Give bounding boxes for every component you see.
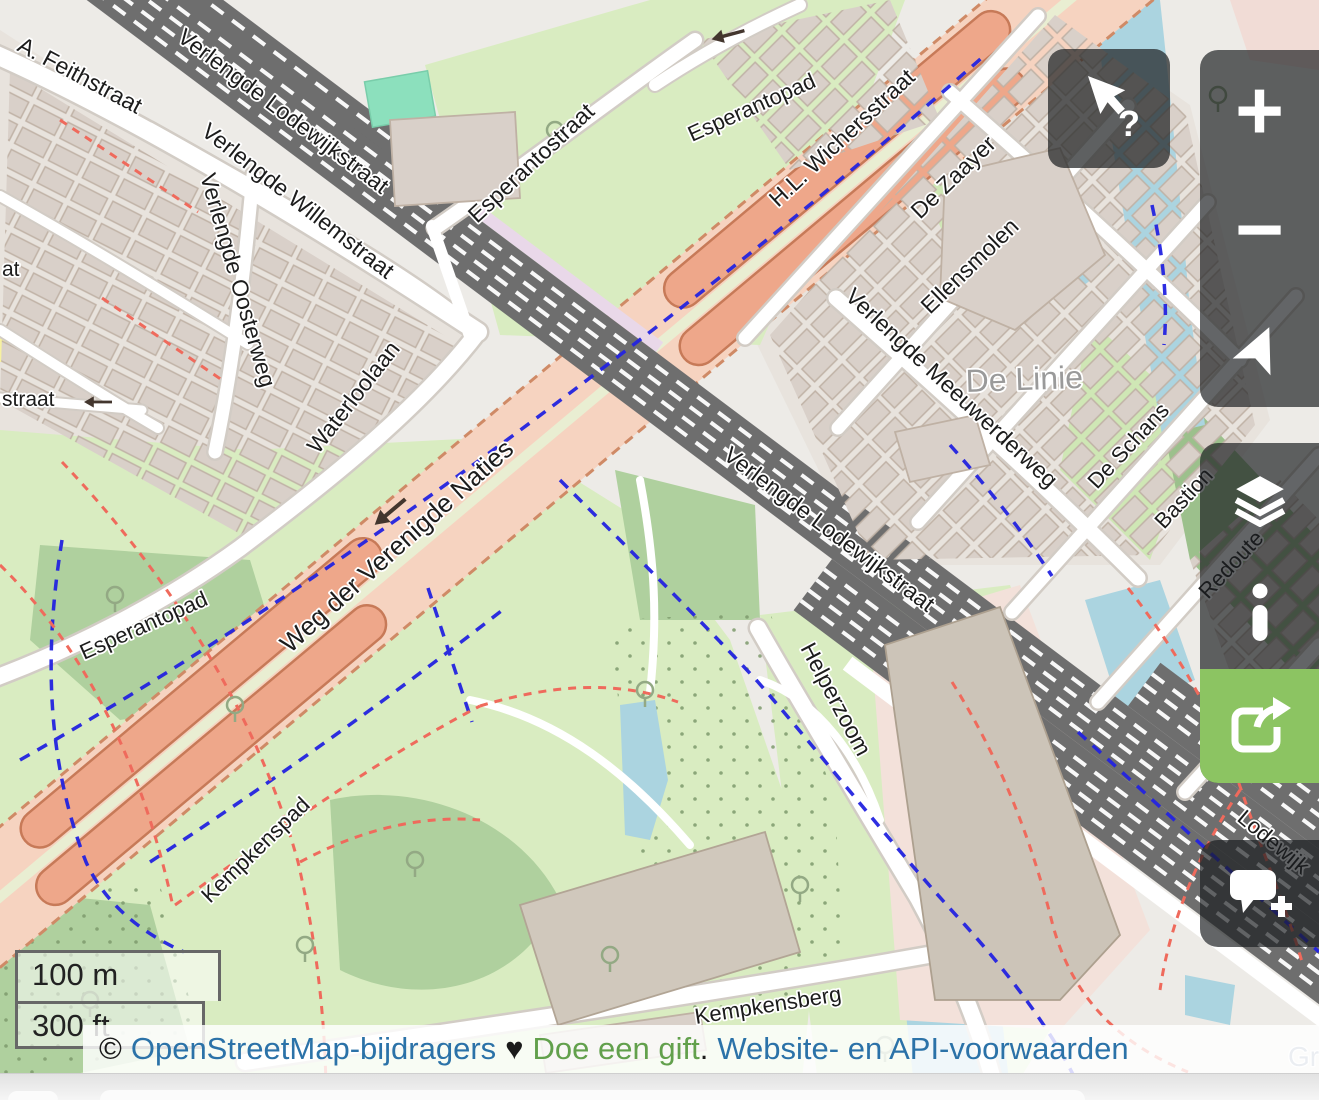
info-icon bbox=[1245, 583, 1275, 643]
note-control-group bbox=[1200, 840, 1319, 947]
share-button[interactable] bbox=[1200, 669, 1319, 783]
add-note-icon bbox=[1226, 866, 1294, 922]
cursor-query-icon: ? bbox=[1066, 70, 1152, 148]
heart-icon: ♥ bbox=[505, 1031, 523, 1067]
terms-link[interactable]: Website- en API-voorwaarden bbox=[717, 1031, 1137, 1067]
locate-button[interactable] bbox=[1200, 288, 1319, 407]
zoom-in-button[interactable]: + bbox=[1200, 50, 1319, 169]
street-label: straat bbox=[2, 388, 55, 411]
layers-icon bbox=[1231, 473, 1289, 527]
layers-button[interactable] bbox=[1200, 443, 1319, 556]
add-note-button[interactable] bbox=[1200, 840, 1319, 947]
zoom-in-label: + bbox=[1235, 68, 1284, 152]
terms-label: Website- en API-voorwaarden bbox=[717, 1031, 1128, 1066]
locate-arrow-icon bbox=[1231, 320, 1289, 376]
tools-control-group bbox=[1200, 443, 1319, 783]
zoom-out-label: − bbox=[1235, 187, 1284, 271]
info-button[interactable] bbox=[1200, 556, 1319, 669]
osm-contributors-label: OpenStreetMap-bijdragers bbox=[131, 1031, 496, 1066]
scale-metric: 100 m bbox=[15, 950, 221, 1001]
question-mark: ? bbox=[1118, 103, 1140, 144]
zoom-out-button[interactable]: − bbox=[1200, 169, 1319, 288]
street-label: at bbox=[2, 258, 20, 281]
bottom-card-wide[interactable] bbox=[100, 1090, 1085, 1100]
share-icon bbox=[1225, 695, 1295, 757]
area-label: De Linie bbox=[965, 359, 1084, 399]
zoom-control-group: + − bbox=[1200, 50, 1319, 407]
sentence-dot: . bbox=[700, 1031, 709, 1067]
copyright-symbol: © bbox=[99, 1031, 122, 1067]
osm-contributors-link[interactable]: OpenStreetMap-bijdragers bbox=[131, 1031, 505, 1067]
donate-label: Doe een gift bbox=[533, 1031, 700, 1066]
bottom-card-small[interactable] bbox=[8, 1091, 58, 1100]
attribution-bar: © OpenStreetMap-bijdragers ♥ Doe een gif… bbox=[83, 1025, 1319, 1073]
donate-link[interactable]: Doe een gift bbox=[533, 1031, 700, 1067]
query-features-button[interactable]: ? bbox=[1048, 49, 1170, 168]
osm-map-page: A. Feithstraat Verlengde Lodewijkstraat … bbox=[0, 0, 1319, 1100]
